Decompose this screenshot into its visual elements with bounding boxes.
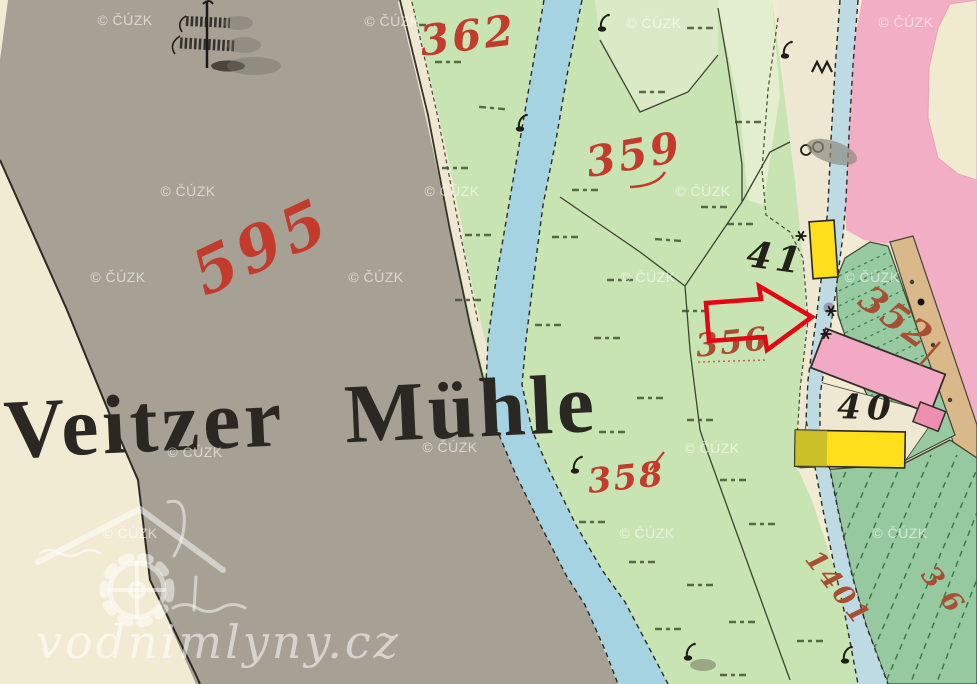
cuzk-watermark: © ČÚZK — [90, 269, 145, 285]
cuzk-watermark: © ČÚZK — [878, 14, 933, 30]
cuzk-watermark: © ČÚZK — [626, 15, 681, 31]
cuzk-watermark: © ČÚZK — [422, 439, 477, 455]
cuzk-watermark: © ČÚZK — [620, 269, 675, 285]
house-label-40: 40 — [837, 387, 898, 429]
cadastral-map-canvas: 595 362 359 358 356 352 1401 36 41 40 Ve… — [0, 0, 977, 684]
vodnimlyny-logo-text: vodnimlyny.cz — [36, 615, 401, 669]
historic-cadastral-map: 595 362 359 358 356 352 1401 36 41 40 Ve… — [0, 0, 977, 684]
cuzk-watermark: © ČÚZK — [844, 269, 899, 285]
cuzk-watermark: © ČÚZK — [97, 12, 152, 28]
cuzk-watermark: © ČÚZK — [619, 525, 674, 541]
cuzk-watermark: © ČÚZK — [684, 440, 739, 456]
cuzk-watermark: © ČÚZK — [872, 525, 927, 541]
cuzk-watermark: © ČÚZK — [160, 183, 215, 199]
ink-dot — [918, 299, 925, 306]
cuzk-watermark: © ČÚZK — [364, 13, 419, 29]
ink-smudge — [690, 659, 716, 671]
cuzk-watermark: © ČÚZK — [675, 183, 730, 199]
cuzk-watermark: © ČÚZK — [424, 183, 479, 199]
cuzk-watermark: © ČÚZK — [348, 269, 403, 285]
path-dot — [910, 280, 914, 284]
cuzk-watermark: © ČÚZK — [167, 444, 222, 460]
parcel-label-358: 358 — [586, 454, 667, 502]
parcel-label-356: 356 — [694, 319, 770, 364]
building-yellow-40-overlap — [795, 430, 828, 467]
building-yellow-41 — [809, 220, 838, 279]
path-dot — [948, 398, 952, 402]
